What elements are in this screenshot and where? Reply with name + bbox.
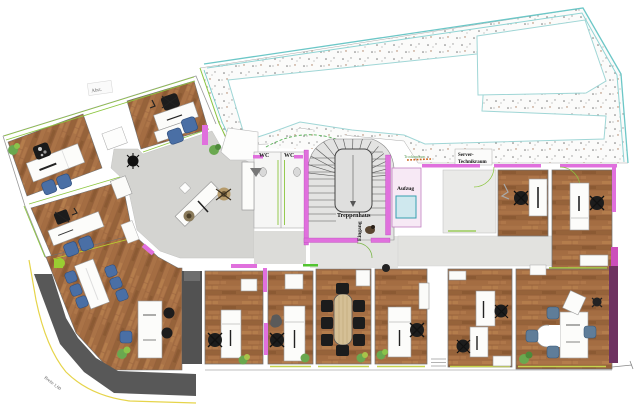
svg-text:Server-: Server- xyxy=(458,153,474,158)
svg-text:WC: WC xyxy=(259,153,269,159)
svg-text:Trockenraum: Trockenraum xyxy=(404,154,426,159)
svg-text:Treppenhaus: Treppenhaus xyxy=(337,213,371,219)
svg-text:WC: WC xyxy=(284,153,294,159)
svg-text:Eingang: Eingang xyxy=(357,221,363,241)
svg-text:Aufzug: Aufzug xyxy=(397,186,414,192)
